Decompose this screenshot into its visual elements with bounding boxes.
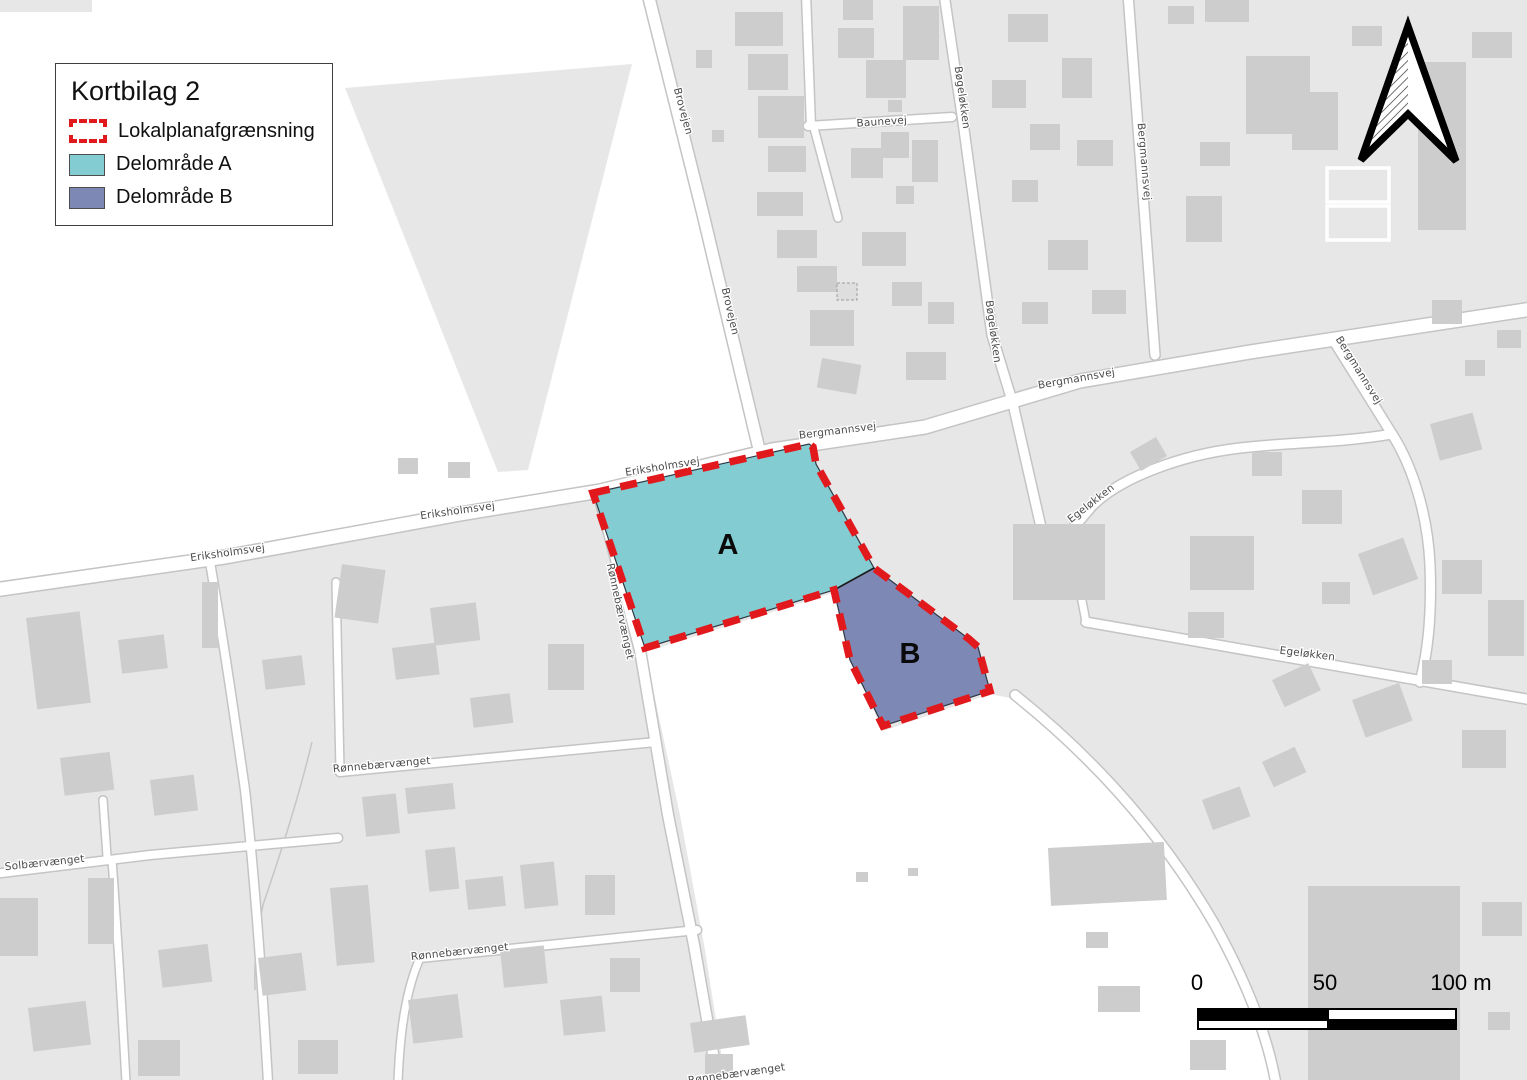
- region-label-B: B: [900, 638, 921, 670]
- scale-bar: 0 50 100 m: [1185, 970, 1505, 1040]
- scale-segment: [1199, 1019, 1327, 1028]
- scale-label-100: 100 m: [1430, 970, 1491, 996]
- area-b-swatch: [69, 187, 105, 209]
- scale-bar-graphic: [1197, 1008, 1457, 1030]
- scale-segment: [1327, 1010, 1455, 1019]
- scale-label-50: 50: [1313, 970, 1337, 996]
- dashed-boundary-swatch: [69, 119, 107, 143]
- legend-item-delomraade-a: Delområde A: [69, 153, 319, 176]
- map-appendix-kortbilag-2: BrovejenBrovejenBaunevejBøgeløkkenBøgelø…: [0, 0, 1527, 1080]
- area-a-swatch: [69, 154, 105, 176]
- legend: Kortbilag 2 Lokalplanafgrænsning Delområ…: [55, 63, 333, 226]
- scale-segment: [1327, 1019, 1455, 1028]
- legend-item-label: Lokalplanafgrænsning: [118, 120, 315, 143]
- legend-title: Kortbilag 2: [71, 76, 319, 107]
- scale-segment: [1199, 1010, 1327, 1019]
- legend-item-label: Delområde A: [116, 153, 232, 176]
- legend-item-lokalplan: Lokalplanafgrænsning: [69, 119, 319, 143]
- region-label-A: A: [718, 529, 739, 561]
- legend-item-label: Delområde B: [116, 186, 233, 209]
- scale-label-0: 0: [1191, 970, 1203, 996]
- legend-item-delomraade-b: Delområde B: [69, 186, 319, 209]
